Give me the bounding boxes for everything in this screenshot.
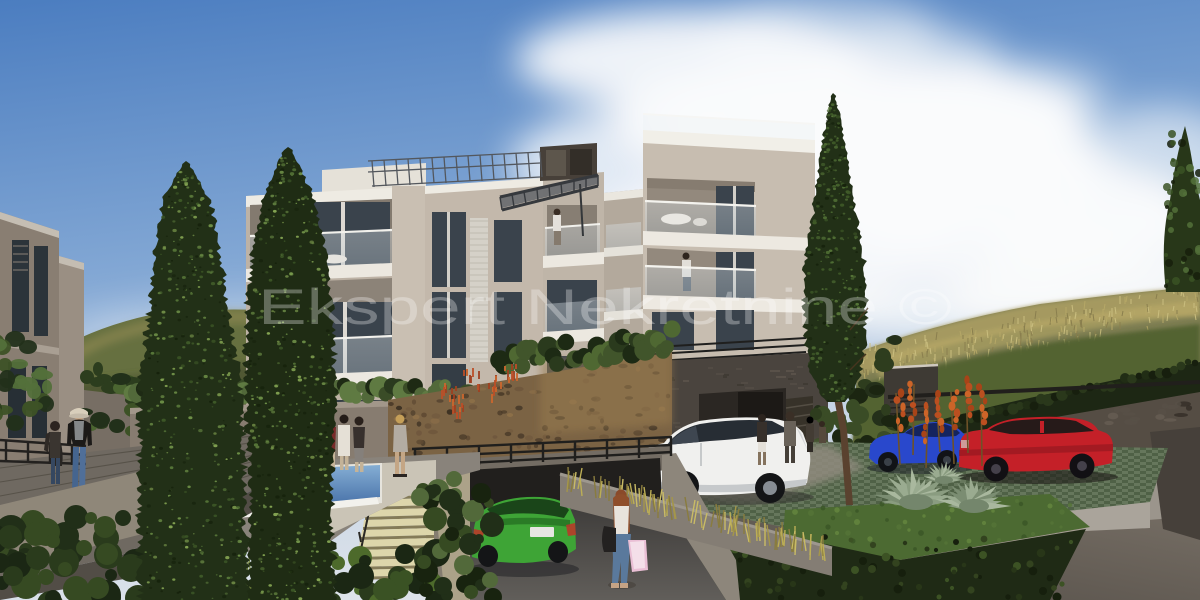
svg-text:Ekspert Nekretnine ©: Ekspert Nekretnine © xyxy=(258,279,952,335)
